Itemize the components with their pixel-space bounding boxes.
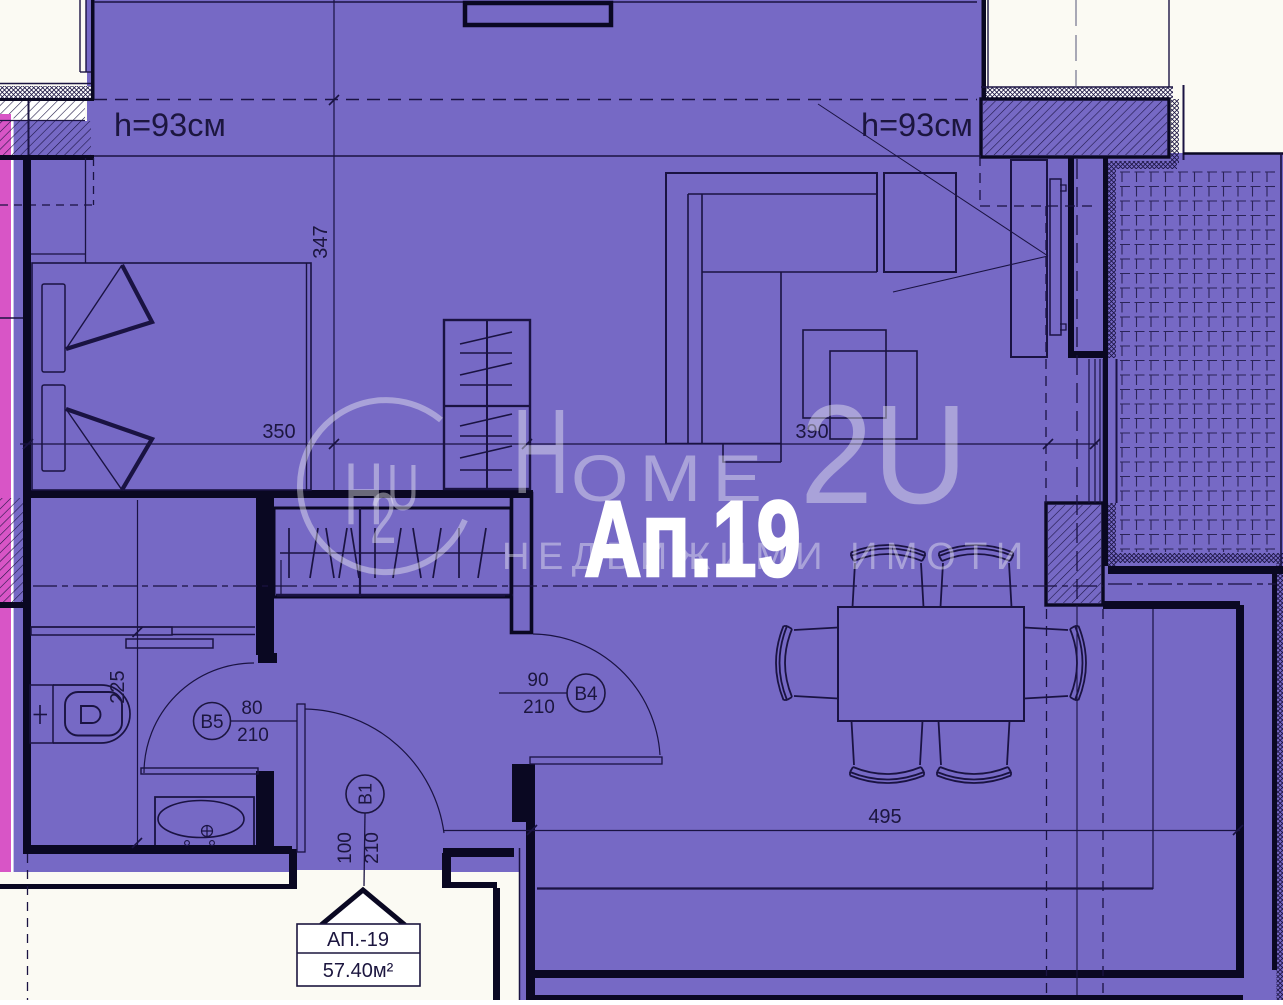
svg-text:B4: B4 bbox=[574, 684, 598, 705]
svg-text:350: 350 bbox=[262, 421, 295, 443]
svg-text:2: 2 bbox=[370, 478, 396, 558]
svg-text:АП.-19: АП.-19 bbox=[327, 929, 389, 951]
svg-text:210: 210 bbox=[237, 725, 269, 746]
svg-text:h=93см: h=93см bbox=[114, 107, 226, 143]
svg-text:B1: B1 bbox=[356, 783, 376, 805]
svg-text:495: 495 bbox=[868, 806, 901, 828]
svg-text:210: 210 bbox=[523, 697, 555, 718]
svg-text:Ап.19: Ап.19 bbox=[584, 478, 801, 599]
svg-text:B5: B5 bbox=[200, 712, 223, 733]
svg-text:57.40м²: 57.40м² bbox=[323, 960, 394, 982]
svg-text:100: 100 bbox=[335, 832, 356, 864]
svg-text:90: 90 bbox=[527, 670, 548, 691]
svg-text:h=93см: h=93см bbox=[861, 107, 973, 143]
svg-text:H: H bbox=[512, 383, 570, 519]
svg-text:347: 347 bbox=[310, 225, 332, 258]
svg-text:2U: 2U bbox=[800, 376, 968, 533]
svg-text:80: 80 bbox=[241, 698, 262, 719]
svg-text:210: 210 bbox=[362, 832, 383, 864]
svg-text:225: 225 bbox=[107, 670, 129, 703]
